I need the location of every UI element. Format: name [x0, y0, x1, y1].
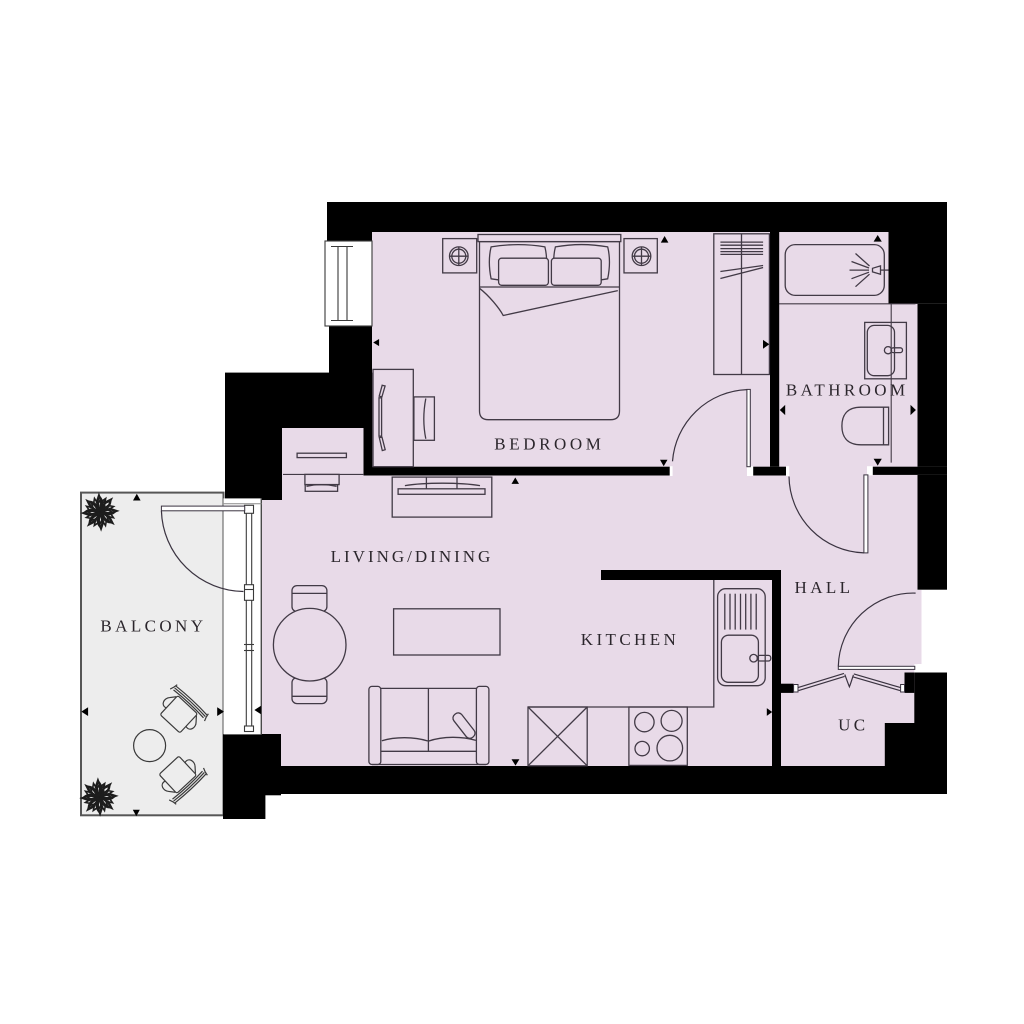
svg-text:BEDROOM: BEDROOM — [494, 435, 604, 454]
svg-text:BALCONY: BALCONY — [100, 617, 206, 636]
svg-text:LIVING/DINING: LIVING/DINING — [331, 547, 494, 566]
svg-text:UC: UC — [838, 716, 868, 735]
svg-text:KITCHEN: KITCHEN — [581, 630, 679, 649]
svg-text:HALL: HALL — [795, 578, 854, 597]
svg-text:BATHROOM: BATHROOM — [786, 380, 909, 399]
